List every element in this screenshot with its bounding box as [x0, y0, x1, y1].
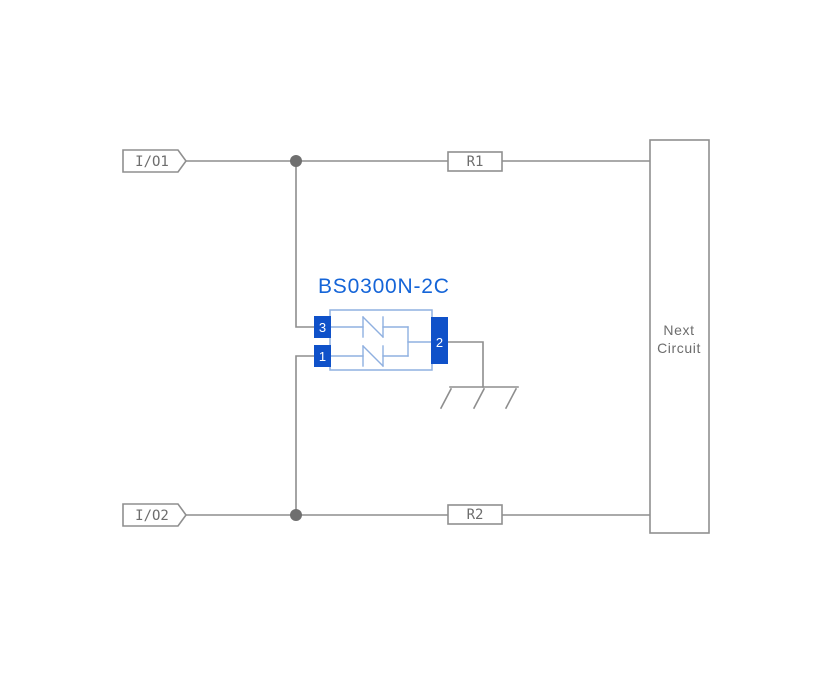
junction-dot-bottom	[290, 509, 302, 521]
next-circuit-block: Next Circuit	[650, 140, 709, 533]
wire-io1-to-pin3	[296, 161, 314, 327]
resistor-r1: R1	[448, 152, 502, 171]
junction-dot-top	[290, 155, 302, 167]
resistor-r1-label: R1	[467, 154, 484, 170]
io2-connector: I/O2	[123, 504, 186, 526]
pin-2: 2	[431, 317, 448, 364]
wire-pin2-to-ground	[448, 342, 483, 387]
tvs-component: BS0300N-2C 3	[314, 275, 450, 370]
next-circuit-label-line1: Next	[663, 322, 694, 338]
ground-hatch-1	[441, 389, 451, 408]
pin-2-label: 2	[436, 335, 443, 350]
pin-1: 1	[314, 345, 331, 367]
io2-label: I/O2	[135, 508, 169, 524]
component-part-number: BS0300N-2C	[318, 275, 450, 298]
pin-3: 3	[314, 316, 331, 338]
ground-hatch-3	[506, 389, 516, 408]
io1-connector: I/O1	[123, 150, 186, 172]
wire-pin1-to-io2	[296, 356, 314, 515]
resistor-r2: R2	[448, 505, 502, 524]
circuit-diagram: I/O1 I/O2 R1 R2 Next Circuit BS0300N-2C	[0, 0, 832, 675]
next-circuit-label-line2: Circuit	[657, 340, 701, 356]
resistor-r2-label: R2	[467, 507, 484, 523]
io1-label: I/O1	[135, 154, 169, 170]
ground-symbol	[441, 387, 518, 408]
pin-3-label: 3	[319, 320, 326, 335]
pin-1-label: 1	[319, 349, 326, 364]
component-body	[330, 310, 432, 370]
circuit-schematic-page: I/O1 I/O2 R1 R2 Next Circuit BS0300N-2C	[0, 0, 832, 675]
ground-hatch-2	[474, 389, 484, 408]
